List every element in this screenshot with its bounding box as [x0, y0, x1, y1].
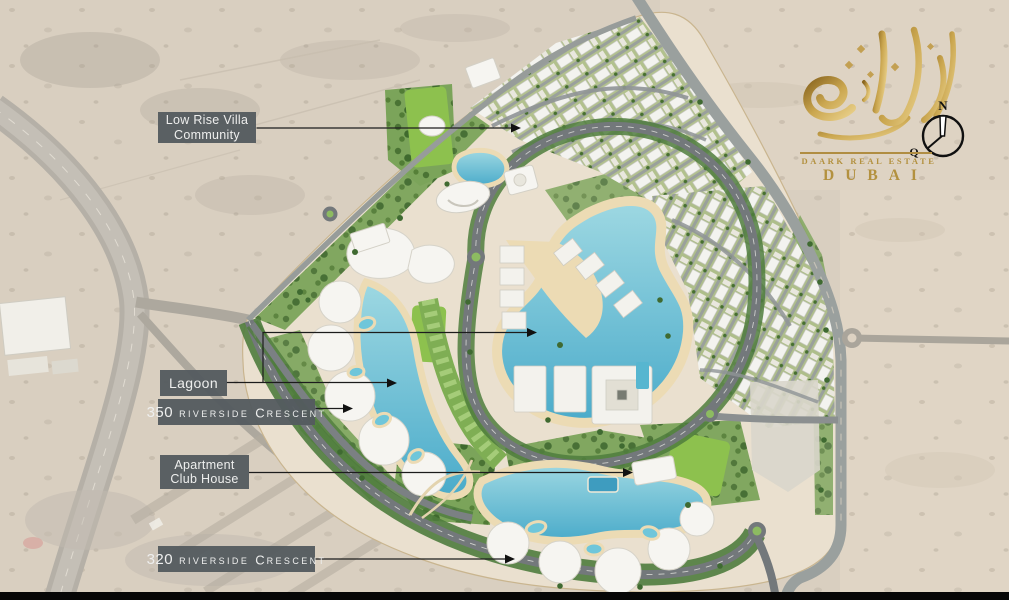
logo-divider — [800, 152, 932, 154]
label-lagoon: Lagoon — [160, 370, 227, 396]
brand-city: DUBAI — [794, 167, 946, 185]
club-pool — [588, 477, 618, 492]
label-320-riverside-crescent: 320 RIVERSIDE C RESCENT — [158, 546, 315, 572]
daark-calligraphy-icon — [807, 30, 953, 138]
label-text: RIVERSIDE — [179, 409, 249, 419]
label-text: Low Rise Villa — [166, 113, 248, 128]
label-text: Community — [174, 128, 240, 143]
label-text: Club House — [170, 472, 238, 487]
crescent-glyph: C — [255, 405, 264, 420]
brand-name: DAARK REAL ESTATE — [798, 156, 940, 166]
project-number: 320 — [147, 551, 174, 568]
label-low-rise-villa-community: Low Rise Villa Community — [158, 112, 256, 143]
label-text: Lagoon — [169, 375, 218, 391]
label-apartment-club-house: Apartment Club House — [160, 455, 249, 489]
villa-pond — [454, 150, 507, 186]
masterplan-screenshot: Low Rise Villa Community Lagoon 350 RIVE… — [0, 0, 1009, 600]
label-text: RESCENT — [267, 409, 327, 419]
label-350-riverside-crescent: 350 RIVERSIDE C RESCENT — [158, 399, 315, 425]
label-text: RIVERSIDE — [179, 556, 249, 566]
daark-logo: N Q DAARK REAL ESTATE DUBAI — [790, 22, 995, 194]
label-text: RESCENT — [267, 556, 327, 566]
compass-north-label: N — [938, 98, 948, 113]
project-number: 350 — [147, 404, 174, 421]
label-text: Apartment — [174, 458, 234, 473]
letterbox-bar — [0, 592, 1009, 600]
crescent-glyph: C — [255, 552, 264, 567]
